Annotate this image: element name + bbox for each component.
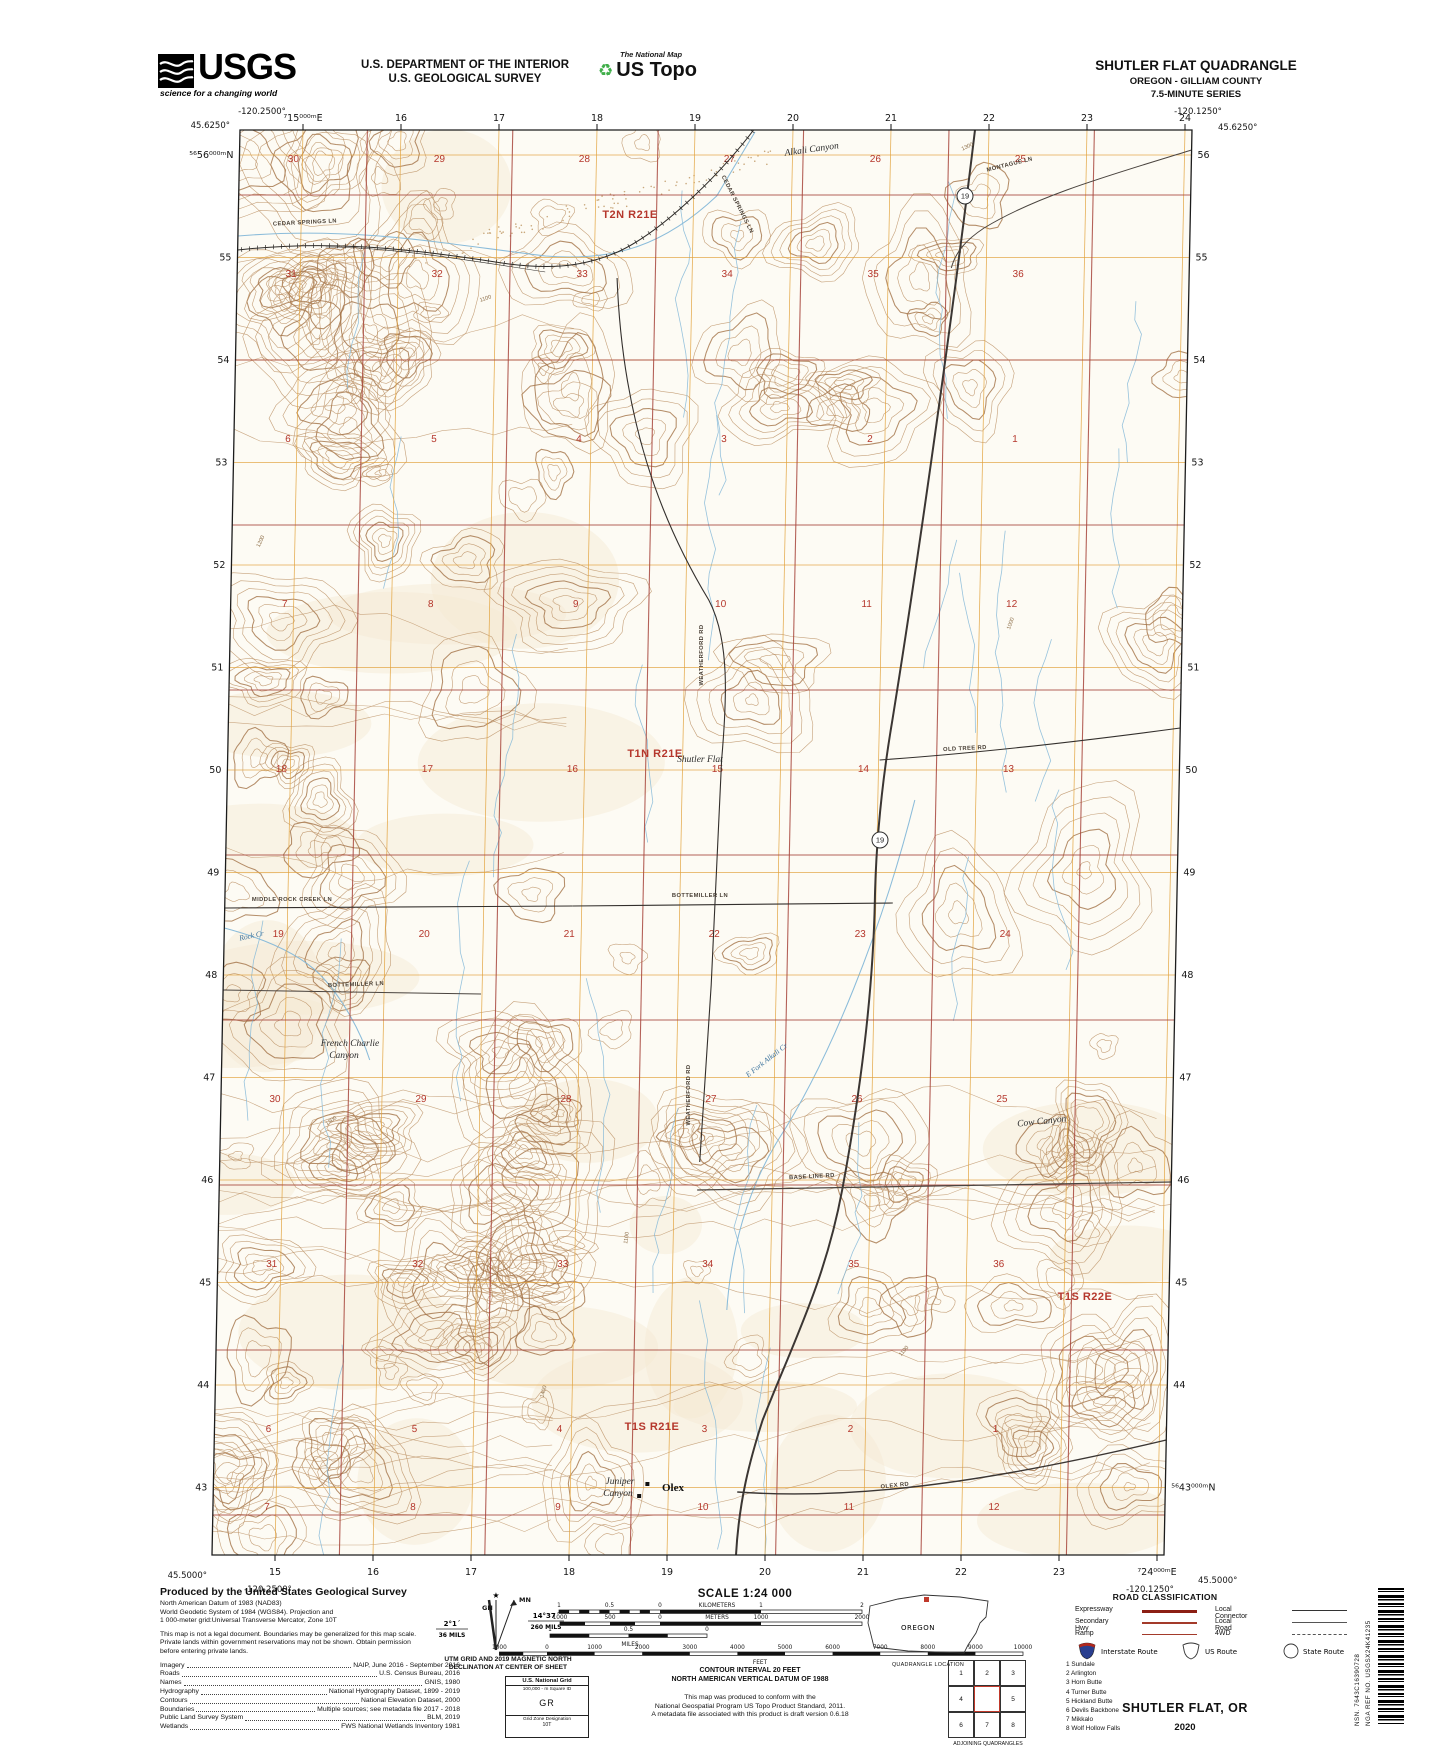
map-section-number: 34 — [721, 269, 733, 280]
corner-coord-nw-lat: 45.6250° — [191, 121, 230, 131]
utm-tick-top: 20 — [787, 113, 799, 124]
utm-tick-top: 17 — [493, 113, 505, 124]
map-section-number: 7 — [264, 1502, 270, 1513]
map-section-number: 7 — [282, 599, 288, 610]
map-section-number: 2 — [848, 1424, 854, 1435]
scale-number: 1000 — [587, 1645, 602, 1651]
scale-number: 0 — [658, 1615, 662, 1621]
adjoining-center-cell — [974, 1686, 1000, 1712]
utm-tick-left: 44 — [197, 1380, 209, 1391]
data-source-row: WetlandsFWS National Wetlands Inventory … — [160, 1723, 460, 1732]
map-section-number: 14 — [858, 764, 870, 775]
adjoining-cell: 1 — [948, 1660, 974, 1686]
data-source-row: ContoursNational Elevation Dataset, 2000 — [160, 1697, 460, 1706]
road-name-label: WEATHERFORD RD — [699, 625, 705, 686]
utm-tick-left: 49 — [207, 868, 219, 879]
conformance-line: A metadata file associated with this pro… — [570, 1711, 930, 1720]
map-section-number: 18 — [276, 764, 288, 775]
utm-tick-right: 49 — [1183, 868, 1195, 879]
contour-interval-notes: CONTOUR INTERVAL 20 FEET NORTH AMERICAN … — [600, 1666, 900, 1684]
road-name-label: BOTTEMILLER LN — [672, 893, 728, 899]
usng-zone: 10T — [506, 1722, 588, 1728]
road-class-swatch — [1292, 1622, 1347, 1623]
road-name-label: MIDDLE ROCK CREEK LN — [252, 897, 332, 903]
adjoining-cell: 8 — [1000, 1712, 1026, 1738]
scale-number: 0 — [658, 1603, 662, 1609]
corner-coord-ne-lat: 45.6250° — [1218, 123, 1257, 133]
conformance-line: National Geospatial Program US Topo Prod… — [570, 1703, 930, 1712]
map-section-number: 27 — [705, 1094, 717, 1105]
adjoining-quad-name: 4 Turner Butte — [1066, 1688, 1166, 1697]
usng-title: U.S. National Grid — [506, 1677, 588, 1686]
map-section-number: 11 — [844, 1502, 855, 1513]
road-class-label: Ramp — [1075, 1630, 1094, 1637]
map-section-number: 11 — [861, 599, 872, 610]
map-section-number: 8 — [410, 1502, 416, 1513]
road-class-swatch — [1142, 1610, 1197, 1613]
map-section-number: 32 — [412, 1259, 424, 1270]
utm-tick-top: 24 — [1179, 113, 1191, 124]
utm-tick-right: 46 — [1177, 1175, 1189, 1186]
utm-tick-right: 53 — [1191, 458, 1203, 469]
gn-degrees: 2°1´ — [444, 1620, 461, 1628]
map-section-number: 12 — [1006, 599, 1018, 610]
utm-tick-bottom: ⁷24⁰⁰⁰ᵐE — [1137, 1567, 1176, 1578]
map-section-number: 31 — [285, 269, 297, 280]
map-section-number: 34 — [702, 1259, 714, 1270]
utm-tick-left: 50 — [209, 765, 221, 776]
road-class-swatch — [1292, 1634, 1347, 1635]
map-section-number: 33 — [576, 269, 588, 280]
road-class-swatch — [1142, 1634, 1197, 1635]
utm-tick-right: 52 — [1189, 560, 1201, 571]
data-sources-list: ImageryNAIP, June 2016 - September 2016R… — [160, 1662, 460, 1732]
route-shield-legend: Interstate Route US Route State Route — [1075, 1640, 1375, 1662]
contour-interval: CONTOUR INTERVAL 20 FEET — [600, 1666, 900, 1675]
utm-tick-top: 19 — [689, 113, 701, 124]
gn-mils: 36 MILS — [439, 1632, 466, 1639]
scale-number: 0.5 — [624, 1627, 634, 1633]
utm-tick-top: 23 — [1081, 113, 1093, 124]
adjoining-cell: 6 — [948, 1712, 974, 1738]
utm-tick-bottom: 17 — [465, 1567, 477, 1578]
place-name-label: French Charlie — [320, 1039, 379, 1049]
scale-title: SCALE 1:24 000 — [630, 1588, 860, 1600]
adjoining-cell: 2 — [974, 1660, 1000, 1686]
adjoining-cell: 7 — [974, 1712, 1000, 1738]
data-source-row: HydrographyNational Hydrography Dataset,… — [160, 1688, 460, 1697]
legal-disclaimer: This map is not a legal document. Bounda… — [160, 1631, 422, 1657]
corner-coord-nw-lon: -120.2500° — [238, 107, 286, 117]
data-source-row: Public Land Survey SystemBLM, 2019 — [160, 1714, 460, 1723]
adjoining-quad-name: 3 Horn Butte — [1066, 1678, 1166, 1687]
map-section-number: 1 — [993, 1424, 999, 1435]
scale-number: 2000 — [635, 1645, 650, 1651]
scale-number: 4000 — [730, 1645, 745, 1651]
sheet-year: 2020 — [1100, 1722, 1270, 1733]
utm-tick-bottom: 20 — [759, 1567, 771, 1578]
map-section-number: 33 — [557, 1259, 569, 1270]
nsn-number: NSN. 7643C16390728 — [1354, 1586, 1361, 1726]
utm-tick-bottom: 15 — [269, 1567, 281, 1578]
utm-tick-left: 52 — [213, 560, 225, 571]
map-section-number: 36 — [993, 1259, 1005, 1270]
township-range-label: T1S R22E — [1058, 1291, 1113, 1303]
scale-number: 6000 — [825, 1645, 840, 1651]
datum-line: World Geodetic System of 1984 (WGS84). P… — [160, 1609, 460, 1618]
scale-number: 1000 — [754, 1615, 769, 1621]
map-section-number: 30 — [288, 154, 300, 165]
map-section-number: 8 — [428, 599, 434, 610]
scale-unit: KILOMETERS — [699, 1603, 736, 1609]
quad-location-dot — [924, 1597, 929, 1602]
corner-coord-se-lat: 45.5000° — [1198, 1576, 1237, 1586]
township-range-label: T1N R21E — [627, 748, 682, 760]
map-section-number: 17 — [422, 764, 434, 775]
us-route-label: US Route — [1205, 1648, 1237, 1656]
map-section-number: 5 — [412, 1424, 418, 1435]
township-range-label: T1S R21E — [625, 1421, 680, 1433]
scale-number: 0.5 — [605, 1603, 615, 1609]
map-section-number: 10 — [715, 599, 727, 610]
road-classification-title: ROAD CLASSIFICATION — [1065, 1592, 1265, 1602]
place-name-label: Juniper — [605, 1477, 634, 1487]
barcode — [1378, 1588, 1404, 1724]
map-section-number: 31 — [266, 1259, 278, 1270]
utm-tick-right: ⁵⁶43⁰⁰⁰ᵐN — [1171, 1483, 1215, 1494]
map-section-number: 10 — [697, 1502, 709, 1513]
scale-number: 10000 — [1014, 1645, 1033, 1651]
scale-number: 5000 — [778, 1645, 793, 1651]
utm-tick-left: 54 — [217, 355, 229, 366]
map-section-number: 32 — [431, 269, 443, 280]
map-section-number: 6 — [285, 434, 291, 445]
map-section-number: 12 — [988, 1502, 1000, 1513]
map-section-number: 23 — [855, 929, 867, 940]
adjoining-cell: 3 — [1000, 1660, 1026, 1686]
route-shield-number: 19 — [876, 836, 884, 845]
data-source-row: NamesGNIS, 1980 — [160, 1679, 460, 1688]
scale-number: 1000 — [492, 1645, 507, 1651]
produced-by: Produced by the United States Geological… — [160, 1586, 460, 1598]
map-section-number: 13 — [1003, 764, 1015, 775]
map-section-number: 3 — [721, 434, 727, 445]
adjoining-quad-name: 2 Arlington — [1066, 1669, 1166, 1678]
scale-number: 1 — [548, 1627, 552, 1633]
adjoining-quadrangles-caption: ADJOINING QUADRANGLES — [918, 1741, 1058, 1746]
map-section-number: 36 — [1012, 269, 1024, 280]
map-section-number: 24 — [1000, 929, 1012, 940]
utm-tick-left: 45 — [199, 1278, 211, 1289]
utm-tick-right: 44 — [1173, 1380, 1185, 1391]
map-section-number: 9 — [555, 1502, 561, 1513]
usng-square-label: 100,000 - m Square ID — [506, 1687, 588, 1692]
map-section-number: 9 — [573, 599, 579, 610]
us-route-shield-icon — [1183, 1643, 1199, 1659]
place-name-label: Canyon — [603, 1489, 633, 1499]
datum-line: North American Datum of 1983 (NAD83) — [160, 1600, 460, 1609]
map-section-number: 2 — [867, 434, 873, 445]
map-section-number: 3 — [702, 1424, 708, 1435]
map-section-number: 4 — [557, 1424, 563, 1435]
conformance-line: This map was produced to conform with th… — [570, 1694, 930, 1703]
map-section-number: 25 — [996, 1094, 1008, 1105]
conformance-note: This map was produced to conform with th… — [570, 1694, 930, 1720]
utm-tick-right: 54 — [1193, 355, 1205, 366]
utm-tick-top: 21 — [885, 113, 897, 124]
utm-tick-left: 48 — [205, 970, 217, 981]
utm-tick-top: 18 — [591, 113, 603, 124]
state-locator-map: OREGON — [862, 1588, 994, 1660]
map-section-number: 1 — [1012, 434, 1018, 445]
data-source-row: BoundariesMultiple sources; see metadata… — [160, 1706, 460, 1715]
sheet-title: SHUTLER FLAT, OR — [1100, 1701, 1270, 1715]
utm-tick-top: 16 — [395, 113, 407, 124]
utm-tick-right: 45 — [1175, 1278, 1187, 1289]
place-name-label: Shutler Flat — [677, 755, 723, 765]
road-class-swatch — [1142, 1622, 1197, 1624]
map-section-number: 35 — [848, 1259, 860, 1270]
place-name-label: Canyon — [329, 1051, 359, 1061]
vertical-datum: NORTH AMERICAN VERTICAL DATUM OF 1988 — [600, 1675, 900, 1684]
corner-coord-sw-lat: 45.5000° — [168, 1571, 207, 1581]
road-class-label: Expressway — [1075, 1606, 1113, 1613]
topo-map: 3029282726253132333435366543217891011121… — [0, 0, 1445, 1746]
map-section-number: 5 — [431, 434, 437, 445]
map-section-number: 28 — [560, 1094, 572, 1105]
map-section-number: 19 — [273, 929, 285, 940]
scale-unit: METERS — [705, 1615, 729, 1621]
adjoining-cell: 5 — [1000, 1686, 1026, 1712]
utm-tick-left: 55 — [219, 253, 231, 264]
utm-tick-left: 51 — [211, 663, 223, 674]
utm-tick-right: 56 — [1197, 150, 1209, 161]
true-north-star: ★ — [492, 1591, 499, 1600]
scale-number: 500 — [604, 1615, 615, 1621]
map-section-number: 29 — [415, 1094, 427, 1105]
utm-tick-bottom: 18 — [563, 1567, 575, 1578]
utm-tick-right: 50 — [1185, 765, 1197, 776]
map-section-number: 28 — [579, 154, 591, 165]
state-route-circle-icon — [1284, 1644, 1298, 1658]
map-section-number: 35 — [867, 269, 879, 280]
town-name-label: Olex — [662, 1482, 684, 1494]
utm-tick-left: 47 — [203, 1073, 215, 1084]
scale-number: 0 — [545, 1645, 549, 1651]
state-route-label: State Route — [1303, 1648, 1344, 1656]
datum-lines: North American Datum of 1983 (NAD83)Worl… — [160, 1600, 460, 1626]
utm-tick-bottom: 16 — [367, 1567, 379, 1578]
map-section-number: 26 — [870, 154, 882, 165]
utm-tick-left: 43 — [195, 1483, 207, 1494]
route-shield-number: 19 — [961, 192, 969, 201]
map-section-number: 30 — [269, 1094, 281, 1105]
nga-ref-number: NGA REF NO. USGSX24K41235 — [1365, 1586, 1372, 1726]
utm-tick-left: 46 — [201, 1175, 213, 1186]
map-section-number: 4 — [576, 434, 582, 445]
scale-number: 0 — [705, 1627, 709, 1633]
road-class-swatch — [1292, 1610, 1347, 1611]
utm-tick-left: 53 — [215, 458, 227, 469]
utm-tick-right: 48 — [1181, 970, 1193, 981]
utm-tick-left: ⁵⁶56⁰⁰⁰ᵐN — [189, 150, 233, 161]
township-range-label: T2N R21E — [602, 209, 657, 221]
state-name: OREGON — [901, 1624, 935, 1632]
adjoining-quadrangles-grid: 12345678 — [948, 1660, 1026, 1738]
utm-tick-top: ⁷15⁰⁰⁰ᵐE — [283, 113, 322, 124]
scale-number: 1000 — [553, 1615, 568, 1621]
utm-tick-right: 51 — [1187, 663, 1199, 674]
utm-tick-bottom: 22 — [955, 1567, 967, 1578]
scale-number: 1 — [557, 1603, 561, 1609]
utm-tick-top: 22 — [983, 113, 995, 124]
interstate-route-label: Interstate Route — [1101, 1648, 1158, 1656]
datum-line: 1 000-meter grid:Universal Transverse Me… — [160, 1617, 460, 1626]
map-section-number: 29 — [434, 154, 446, 165]
road-name-label: WEATHERFORD RD — [686, 1065, 692, 1126]
utm-tick-right: 55 — [1195, 253, 1207, 264]
utm-tick-bottom: 19 — [661, 1567, 673, 1578]
map-section-number: 6 — [266, 1424, 272, 1435]
scale-number: 3000 — [682, 1645, 697, 1651]
utm-tick-right: 47 — [1179, 1073, 1191, 1084]
map-section-number: 22 — [709, 929, 721, 940]
map-section-number: 20 — [419, 929, 431, 940]
utm-tick-bottom: 21 — [857, 1567, 869, 1578]
map-section-number: 16 — [567, 764, 579, 775]
scale-number: 1 — [759, 1603, 763, 1609]
map-section-number: 21 — [564, 929, 576, 940]
adjoining-cell: 4 — [948, 1686, 974, 1712]
road-class-label: 4WD — [1215, 1630, 1231, 1637]
utm-tick-bottom: 23 — [1053, 1567, 1065, 1578]
